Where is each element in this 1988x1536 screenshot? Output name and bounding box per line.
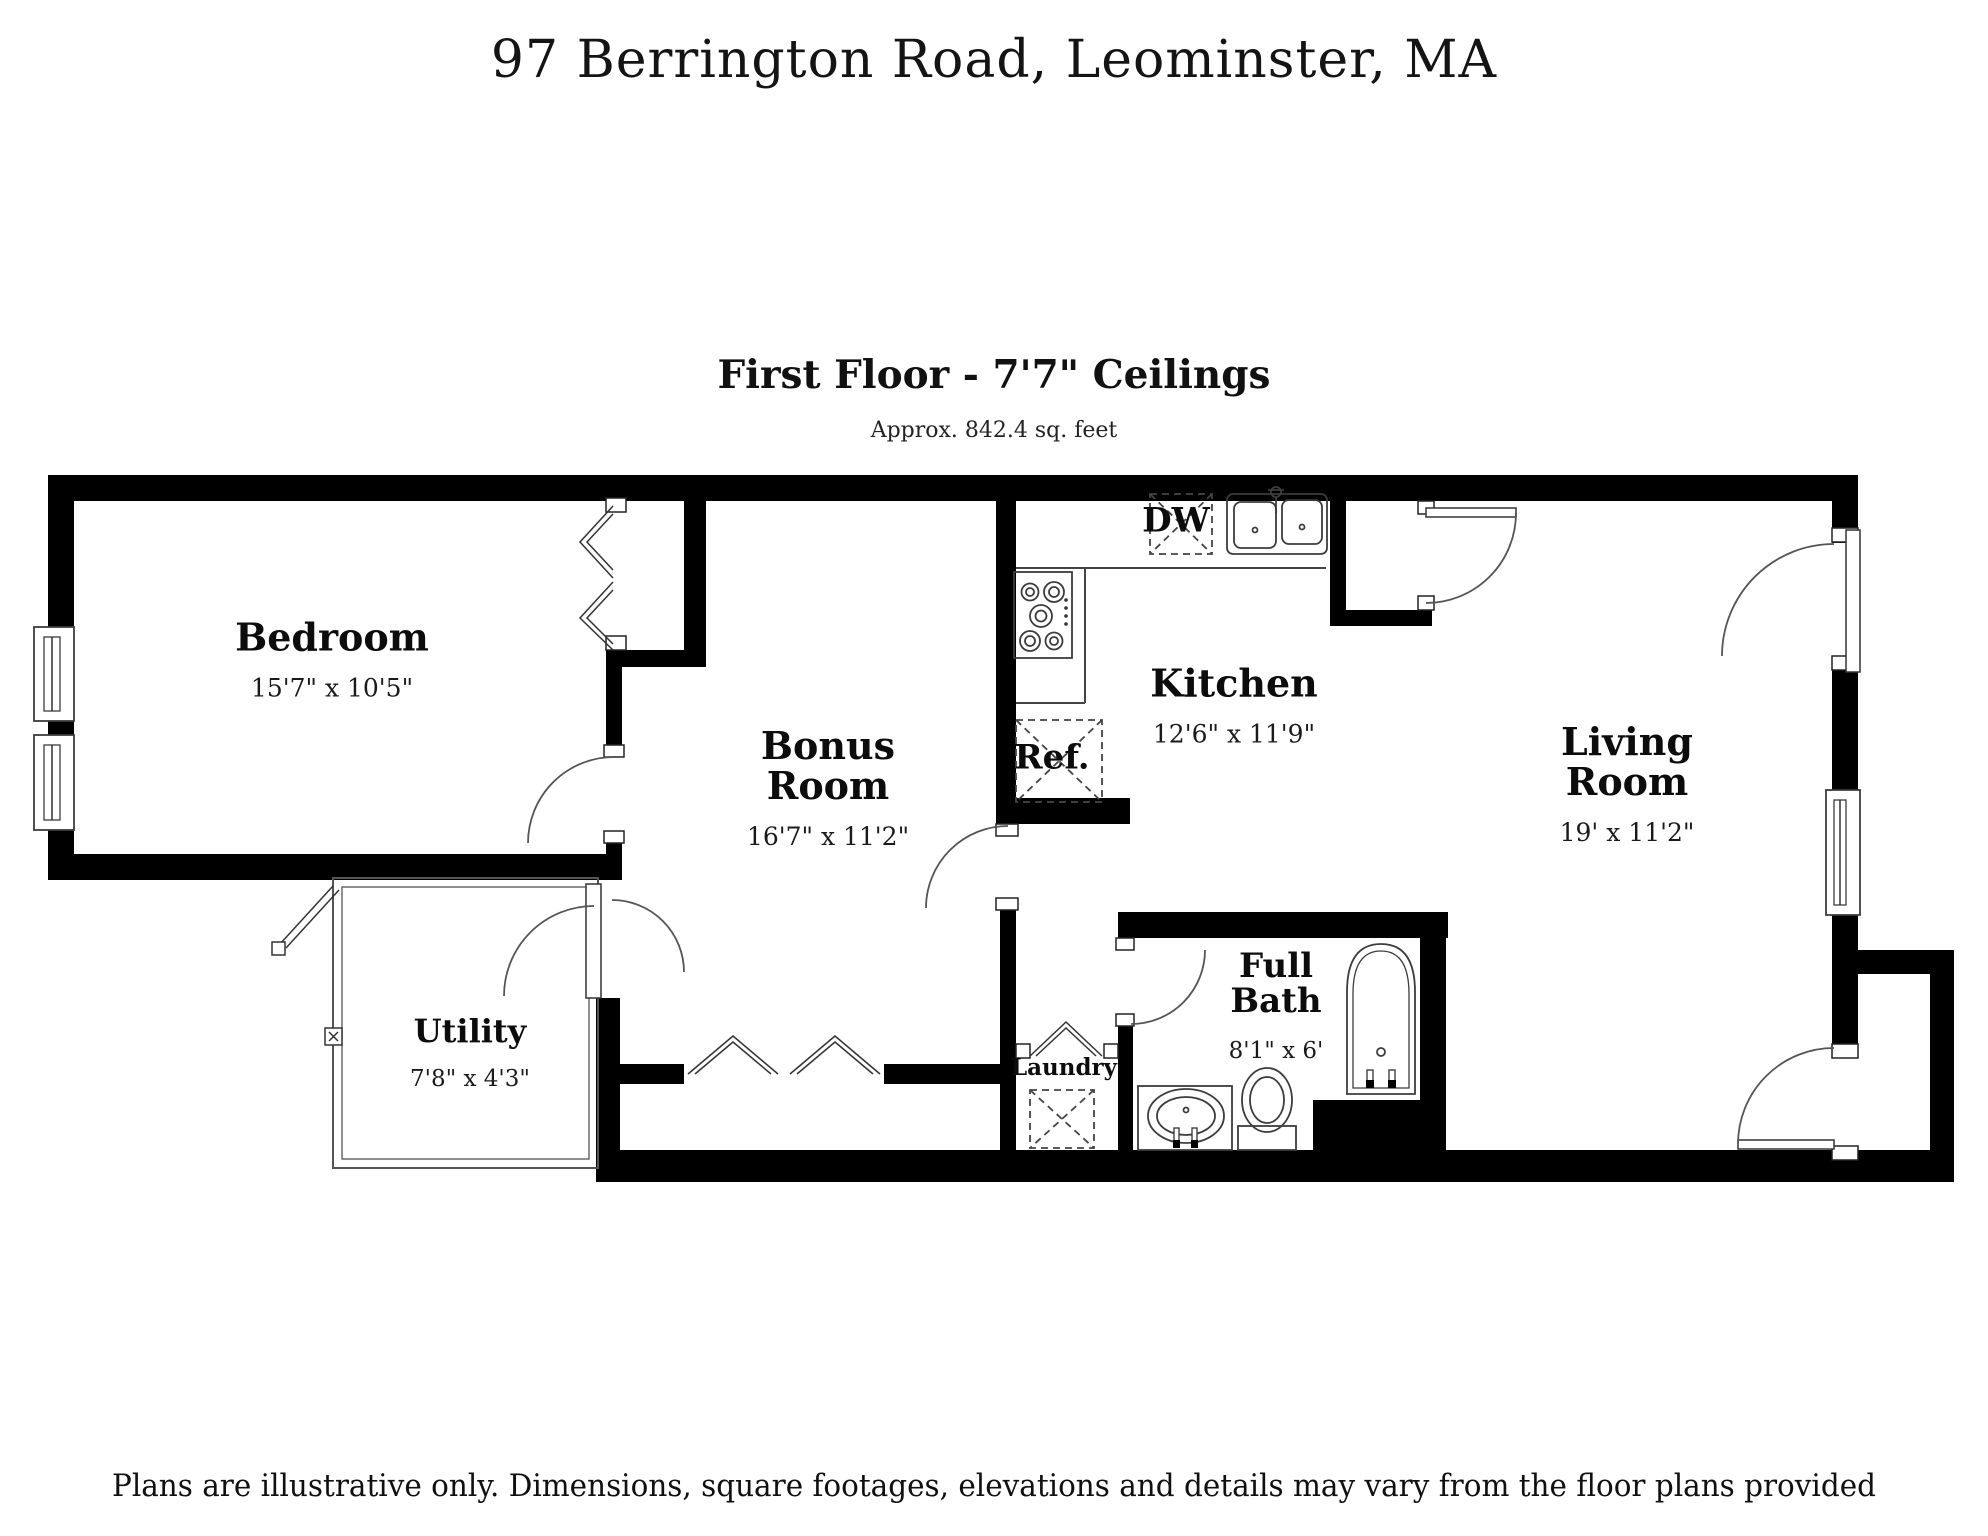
rear-door — [1738, 1048, 1834, 1149]
bonus-room-label: Bonus Room 16'7" x 11'2" — [747, 709, 909, 867]
full-bath-label: Full Bath 8'1" x 6' — [1229, 932, 1324, 1080]
floor-plan-page: 97 Berrington Road, Leominster, MA First… — [0, 0, 1988, 1536]
utility-door — [504, 884, 684, 998]
living-room-window — [1826, 790, 1860, 915]
front-door — [1722, 530, 1860, 672]
utility-dimensions: 7'8" x 4'3" — [410, 1067, 530, 1091]
bedroom-label: Bedroom 15'7" x 10'5" — [235, 601, 429, 720]
refrigerator-text: Ref. — [1014, 740, 1089, 776]
bedroom-closet-bifold-doors — [580, 506, 613, 650]
bedroom-window-lower — [34, 735, 74, 830]
utility-name: Utility — [410, 1015, 530, 1049]
kitchen-living-door — [1426, 508, 1516, 603]
full-bath-name: Full Bath — [1229, 949, 1324, 1020]
bathroom-sink-icon — [1138, 1086, 1232, 1150]
bedroom-name: Bedroom — [235, 618, 429, 658]
stove-icon — [1014, 572, 1072, 658]
utility-corner-door — [272, 886, 339, 955]
kitchen-name: Kitchen — [1150, 664, 1318, 704]
living-room-name: Living Room — [1560, 722, 1695, 802]
kitchen-label: Kitchen 12'6" x 11'9" — [1150, 647, 1318, 766]
living-room-label: Living Room 19' x 11'2" — [1560, 705, 1695, 863]
bonus-room-door — [926, 826, 1008, 908]
kitchen-dimensions: 12'6" x 11'9" — [1150, 722, 1318, 748]
refrigerator-label: Ref. — [1014, 723, 1089, 792]
full-bath-dimensions: 8'1" x 6' — [1229, 1039, 1324, 1063]
laundry-label: Laundry — [1011, 1039, 1117, 1097]
dishwasher-label: DW — [1142, 486, 1210, 555]
toilet-icon — [1238, 1068, 1296, 1150]
bedroom-door — [528, 757, 614, 843]
bedroom-dimensions: 15'7" x 10'5" — [235, 676, 429, 702]
washer-icon — [1030, 1090, 1094, 1148]
utility-label: Utility 7'8" x 4'3" — [410, 998, 530, 1108]
bonus-closet-bifold-doors — [688, 1036, 880, 1074]
dishwasher-text: DW — [1142, 503, 1210, 539]
living-room-dimensions: 19' x 11'2" — [1560, 820, 1695, 846]
laundry-name: Laundry — [1011, 1056, 1117, 1080]
bathtub-icon — [1347, 944, 1415, 1094]
bonus-room-name: Bonus Room — [747, 726, 909, 806]
disclaimer-text: Plans are illustrative only. Dimensions,… — [50, 1468, 1939, 1504]
bedroom-window-upper — [34, 627, 74, 721]
bathroom-door — [1131, 950, 1205, 1024]
bonus-room-dimensions: 16'7" x 11'2" — [747, 824, 909, 850]
